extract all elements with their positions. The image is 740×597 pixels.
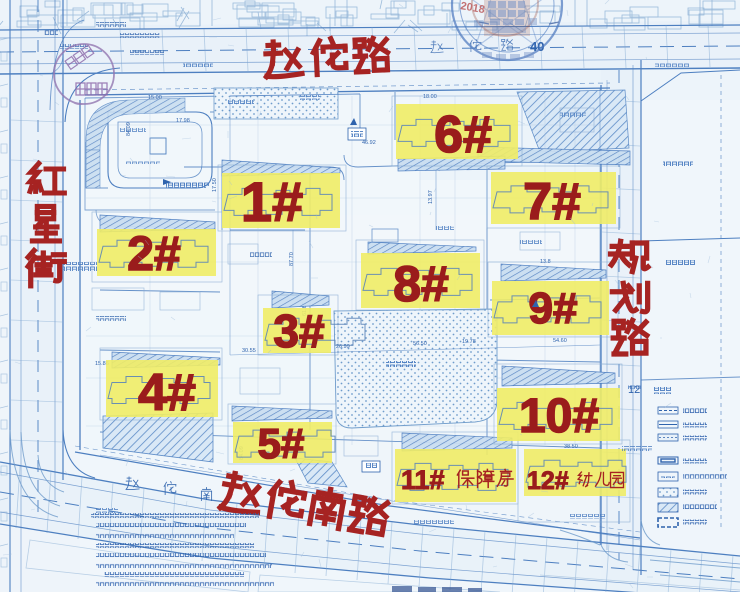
svg-text:17.98: 17.98 xyxy=(176,118,190,124)
svg-text:3#: 3# xyxy=(273,305,324,357)
svg-text:15.00: 15.00 xyxy=(148,95,162,101)
svg-text:12: 12 xyxy=(628,384,640,396)
svg-text:13.97: 13.97 xyxy=(428,190,434,204)
svg-text:5#: 5# xyxy=(258,420,305,467)
svg-text:87.70: 87.70 xyxy=(289,252,295,266)
svg-text:7#: 7# xyxy=(523,173,581,231)
svg-text:8#: 8# xyxy=(393,256,449,312)
svg-text:56.50: 56.50 xyxy=(413,341,427,347)
svg-text:12#: 12# xyxy=(527,467,569,495)
svg-text:2#: 2# xyxy=(127,228,180,281)
svg-text:4#: 4# xyxy=(138,364,196,422)
svg-text:17.50: 17.50 xyxy=(212,178,218,192)
svg-text:46.92: 46.92 xyxy=(362,140,376,146)
svg-text:6#: 6# xyxy=(434,106,492,164)
svg-text:9#: 9# xyxy=(529,284,578,333)
svg-text:84.09: 84.09 xyxy=(126,122,132,136)
svg-text:30.55: 30.55 xyxy=(242,348,256,354)
svg-text:19.78: 19.78 xyxy=(462,339,476,345)
svg-text:1#: 1# xyxy=(241,170,303,233)
svg-text:10#: 10# xyxy=(519,390,599,443)
svg-text:11#: 11# xyxy=(401,465,445,495)
svg-text:18.00: 18.00 xyxy=(423,94,437,100)
svg-text:54.60: 54.60 xyxy=(553,338,567,344)
